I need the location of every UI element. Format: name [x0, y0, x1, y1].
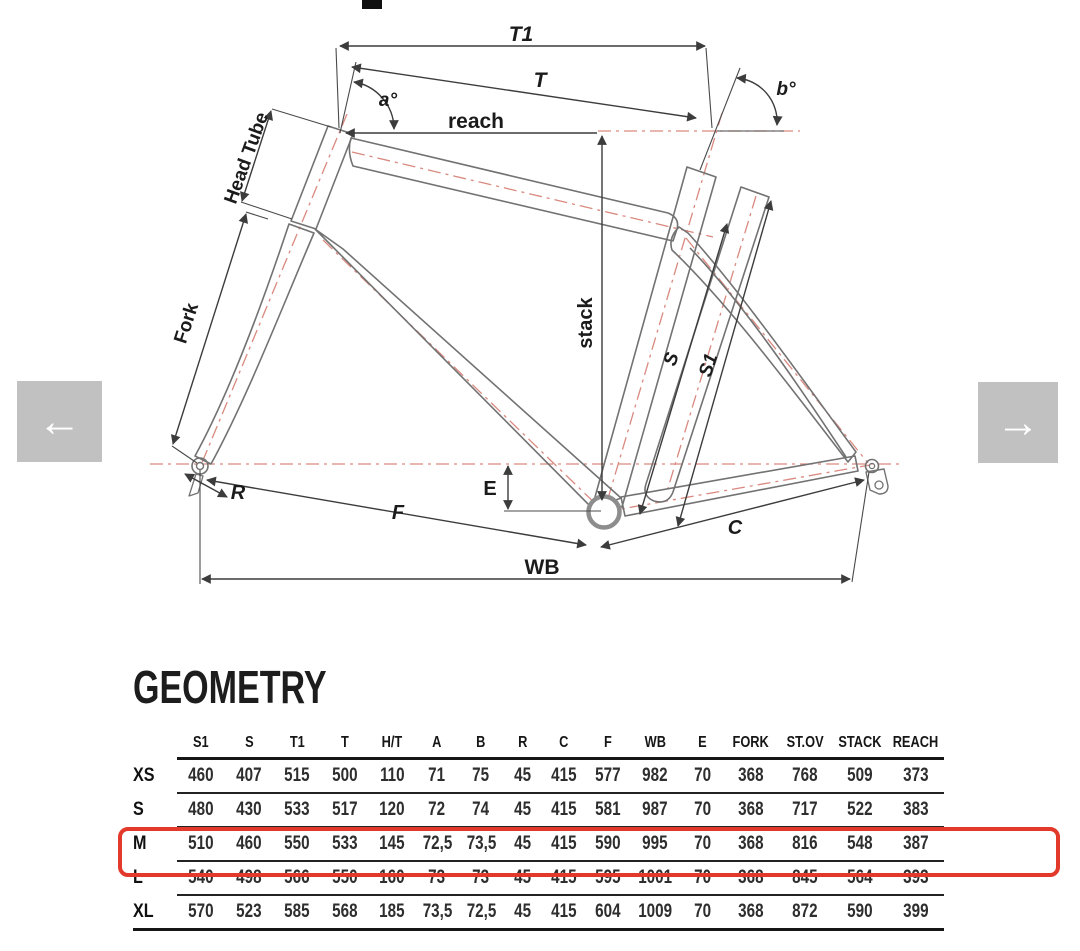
carousel-prev-button[interactable]: ← [17, 381, 102, 462]
size-label: XL [133, 895, 177, 930]
value-cell: 460 [177, 759, 225, 794]
table-row: XS46040751550011071754541557798270368768… [133, 759, 944, 794]
value-cell: 522 [833, 793, 887, 827]
column-header: S1 [177, 728, 225, 759]
value-cell: 415 [543, 861, 585, 895]
value-cell: 70 [680, 793, 725, 827]
value-cell: 368 [725, 827, 777, 861]
value-cell: 110 [369, 759, 415, 794]
value-cell: 145 [369, 827, 415, 861]
value-cell: 517 [321, 793, 369, 827]
value-cell: 515 [273, 759, 321, 794]
arrow-right-icon: → [996, 401, 1040, 445]
label-head-tube: Head Tube [221, 110, 273, 207]
value-cell: 585 [273, 895, 321, 930]
value-cell: 995 [630, 827, 680, 861]
value-cell: 185 [369, 895, 415, 930]
value-cell: 987 [630, 793, 680, 827]
column-header: R [503, 728, 543, 759]
geometry-table: S1ST1TH/TABRCFWBEFORKST.OVSTACKREACH XS4… [133, 728, 944, 931]
size-label: S [133, 793, 177, 827]
column-header: S [225, 728, 273, 759]
value-cell: 816 [777, 827, 833, 861]
value-cell: 73 [459, 861, 503, 895]
value-cell: 383 [887, 793, 944, 827]
column-header: FORK [725, 728, 777, 759]
column-header: A [415, 728, 459, 759]
frame-outline [189, 126, 888, 528]
value-cell: 430 [225, 793, 273, 827]
geometry-table-header-row: S1ST1TH/TABRCFWBEFORKST.OVSTACKREACH [133, 728, 944, 759]
dimension-lines [173, 46, 864, 579]
value-cell: 73,5 [415, 895, 459, 930]
page: T1 T a° b° reach Head Tube Fork stack S … [0, 0, 1080, 951]
label-wb: WB [525, 556, 560, 579]
value-cell: 590 [833, 895, 887, 930]
label-t1: T1 [509, 23, 534, 46]
centerlines [150, 113, 902, 512]
geometry-section: GEOMETRY S1ST1TH/TABRCFWBEFORKST.OVSTACK… [133, 664, 1073, 931]
value-cell: 550 [273, 827, 321, 861]
size-label: XS [133, 759, 177, 794]
value-cell: 717 [777, 793, 833, 827]
value-cell: 399 [887, 895, 944, 930]
value-cell: 368 [725, 793, 777, 827]
value-cell: 533 [321, 827, 369, 861]
label-angle-b: b° [776, 79, 796, 100]
column-header: ST.OV [777, 728, 833, 759]
value-cell: 72,5 [459, 895, 503, 930]
value-cell: 548 [833, 827, 887, 861]
value-cell: 500 [321, 759, 369, 794]
column-header: REACH [887, 728, 944, 759]
extension-lines [172, 48, 869, 584]
column-header: F [585, 728, 630, 759]
value-cell: 45 [503, 827, 543, 861]
value-cell: 120 [369, 793, 415, 827]
label-e: E [483, 478, 496, 500]
value-cell: 387 [887, 827, 944, 861]
label-t: T [534, 69, 549, 92]
table-row: L540498566550160737345415595100170368845… [133, 861, 944, 895]
value-cell: 72,5 [415, 827, 459, 861]
column-header: WB [630, 728, 680, 759]
value-cell: 415 [543, 827, 585, 861]
value-cell: 1009 [630, 895, 680, 930]
size-label: L [133, 861, 177, 895]
column-header: H/T [369, 728, 415, 759]
value-cell: 581 [585, 793, 630, 827]
value-cell: 45 [503, 861, 543, 895]
value-cell: 533 [273, 793, 321, 827]
value-cell: 71 [415, 759, 459, 794]
value-cell: 595 [585, 861, 630, 895]
column-header: B [459, 728, 503, 759]
value-cell: 845 [777, 861, 833, 895]
value-cell: 570 [177, 895, 225, 930]
value-cell: 577 [585, 759, 630, 794]
value-cell: 407 [225, 759, 273, 794]
table-row: S480430533517120727445415581987703687175… [133, 793, 944, 827]
value-cell: 982 [630, 759, 680, 794]
column-header: E [680, 728, 725, 759]
value-cell: 74 [459, 793, 503, 827]
label-r: R [231, 482, 246, 504]
value-cell: 566 [273, 861, 321, 895]
value-cell: 523 [225, 895, 273, 930]
value-cell: 460 [225, 827, 273, 861]
value-cell: 75 [459, 759, 503, 794]
value-cell: 70 [680, 895, 725, 930]
value-cell: 872 [777, 895, 833, 930]
value-cell: 368 [725, 861, 777, 895]
value-cell: 1001 [630, 861, 680, 895]
value-cell: 70 [680, 827, 725, 861]
value-cell: 45 [503, 759, 543, 794]
value-cell: 550 [321, 861, 369, 895]
value-cell: 70 [680, 759, 725, 794]
label-angle-a: a° [379, 90, 398, 111]
value-cell: 73,5 [459, 827, 503, 861]
column-header: T1 [273, 728, 321, 759]
label-stack: stack [575, 297, 597, 349]
value-cell: 604 [585, 895, 630, 930]
label-reach: reach [448, 110, 504, 133]
value-cell: 564 [833, 861, 887, 895]
value-cell: 73 [415, 861, 459, 895]
value-cell: 393 [887, 861, 944, 895]
carousel-next-button[interactable]: → [978, 382, 1058, 463]
value-cell: 45 [503, 793, 543, 827]
label-c: C [728, 517, 743, 539]
value-cell: 509 [833, 759, 887, 794]
value-cell: 415 [543, 793, 585, 827]
column-header: STACK [833, 728, 887, 759]
geometry-table-body: XS46040751550011071754541557798270368768… [133, 759, 944, 930]
value-cell: 768 [777, 759, 833, 794]
size-label: M [133, 827, 177, 861]
corner-cell [133, 728, 177, 759]
value-cell: 480 [177, 793, 225, 827]
table-row-selected: M51046055053314572,573,54541559099570368… [133, 827, 944, 861]
value-cell: 368 [725, 895, 777, 930]
geometry-diagram: T1 T a° b° reach Head Tube Fork stack S … [0, 0, 1080, 640]
arrow-left-icon: ← [38, 400, 82, 444]
column-header: C [543, 728, 585, 759]
value-cell: 498 [225, 861, 273, 895]
value-cell: 540 [177, 861, 225, 895]
value-cell: 590 [585, 827, 630, 861]
value-cell: 160 [369, 861, 415, 895]
table-row: XL57052358556818573,572,5454156041009703… [133, 895, 944, 930]
label-f: F [392, 502, 405, 524]
value-cell: 510 [177, 827, 225, 861]
label-s: S [660, 350, 684, 369]
label-fork: Fork [170, 300, 203, 346]
column-header: T [321, 728, 369, 759]
value-cell: 72 [415, 793, 459, 827]
value-cell: 368 [725, 759, 777, 794]
value-cell: 415 [543, 759, 585, 794]
value-cell: 45 [503, 895, 543, 930]
value-cell: 70 [680, 861, 725, 895]
value-cell: 568 [321, 895, 369, 930]
value-cell: 415 [543, 895, 585, 930]
section-title: GEOMETRY [133, 664, 829, 710]
value-cell: 373 [887, 759, 944, 794]
